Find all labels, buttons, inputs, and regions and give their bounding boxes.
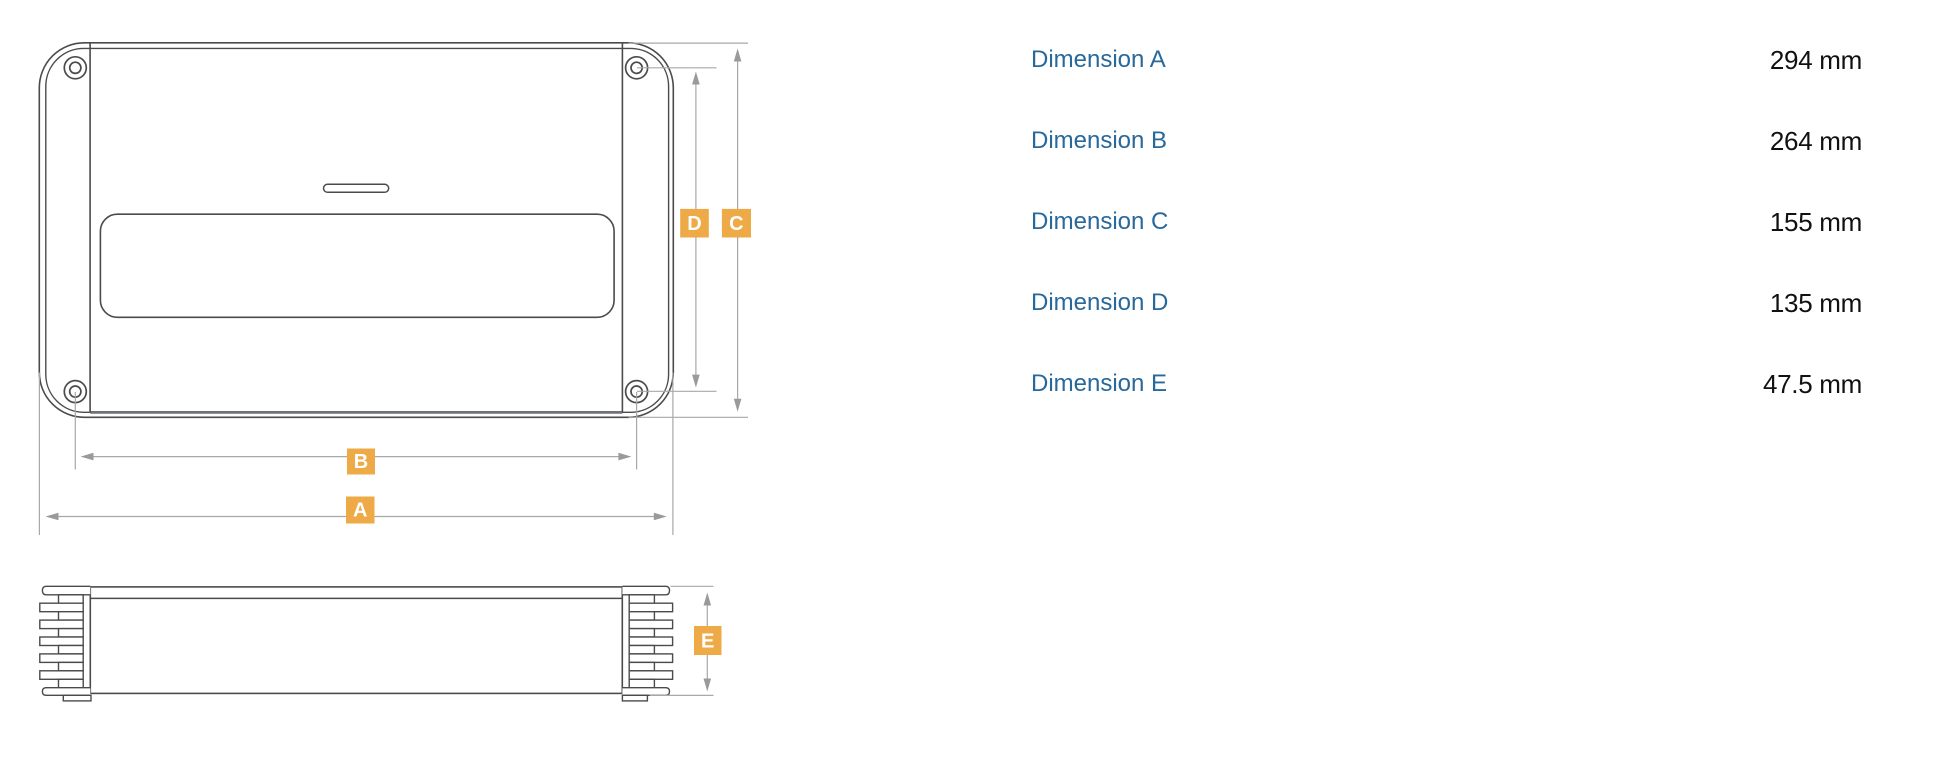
svg-text:E: E xyxy=(701,631,714,653)
svg-text:C: C xyxy=(729,213,743,235)
svg-text:A: A xyxy=(353,500,367,522)
svg-text:B: B xyxy=(354,451,368,473)
svg-text:D: D xyxy=(687,213,701,235)
